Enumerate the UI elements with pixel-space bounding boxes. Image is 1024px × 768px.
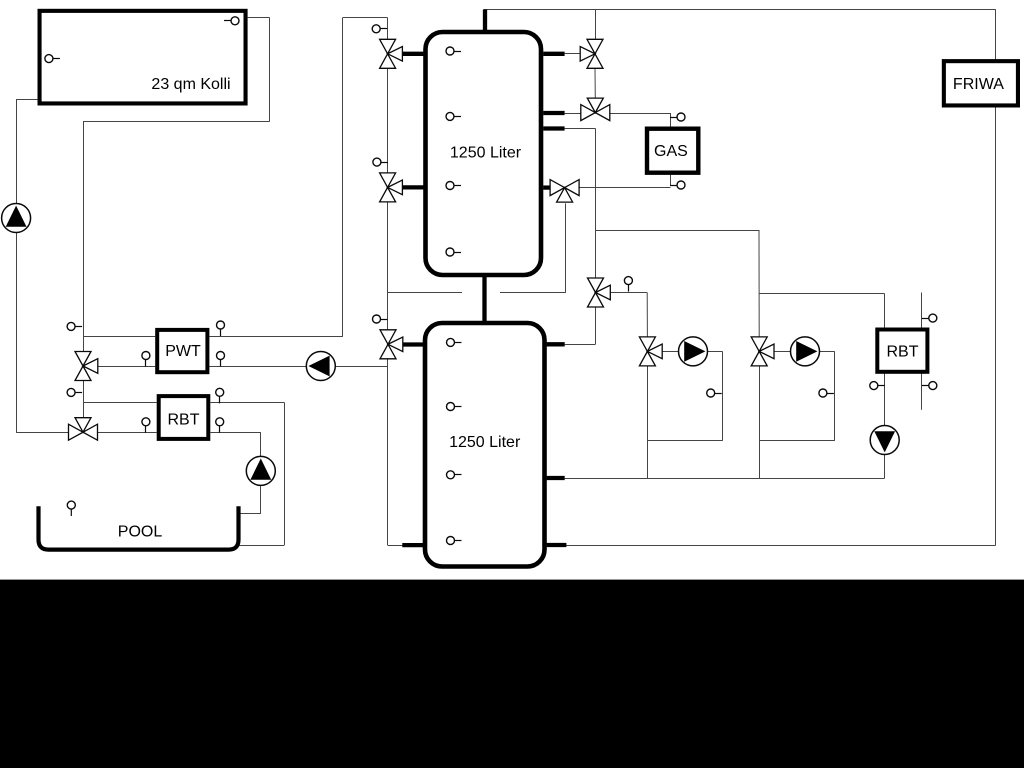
svg-text:GAS: GAS (654, 143, 688, 160)
svg-text:1250 Liter: 1250 Liter (449, 434, 521, 451)
svg-text:POOL: POOL (118, 524, 163, 541)
svg-text:PWT: PWT (165, 343, 201, 360)
svg-text:FRIWA: FRIWA (953, 76, 1004, 93)
svg-text:RBT: RBT (887, 344, 919, 361)
svg-text:RBT: RBT (168, 412, 200, 429)
svg-text:1250 Liter: 1250 Liter (450, 144, 522, 161)
svg-text:23 qm Kolli: 23 qm Kolli (151, 76, 230, 93)
